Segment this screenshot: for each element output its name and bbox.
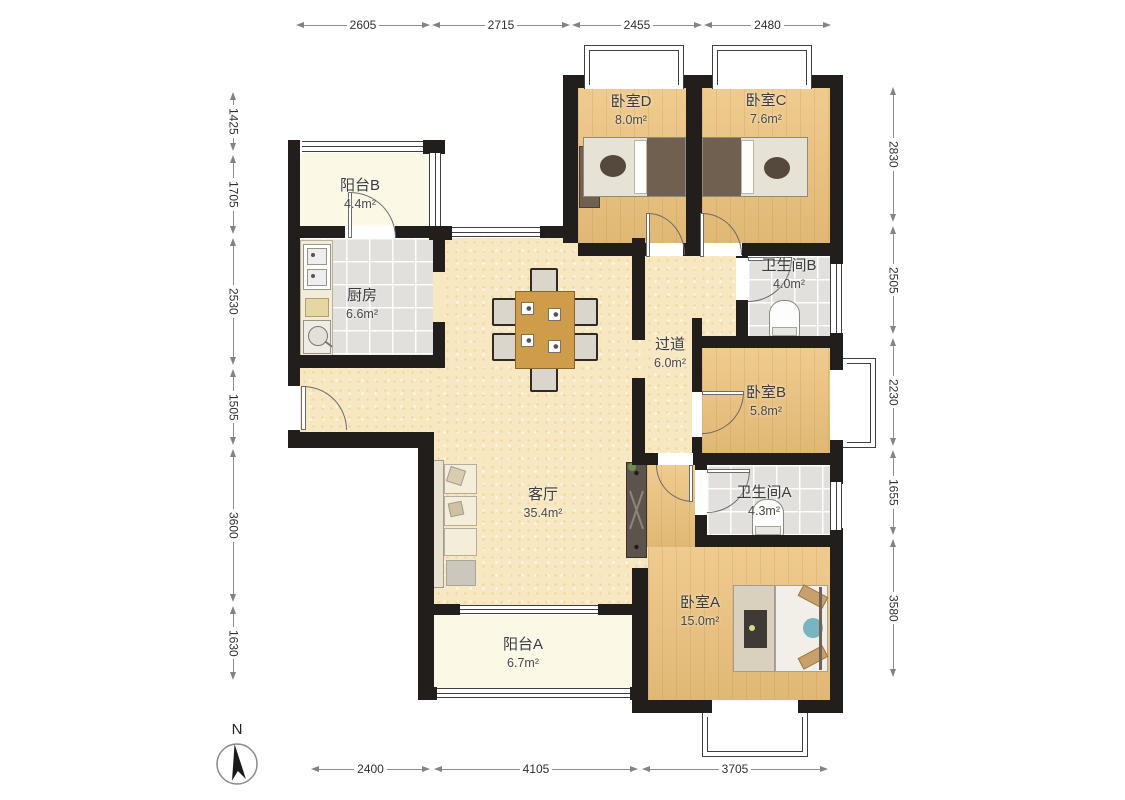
door-leaf (700, 213, 704, 257)
room-name: 卧室B (746, 384, 786, 403)
kitchen-passage (433, 272, 445, 322)
wall (418, 687, 437, 700)
room-label-bath-b: 卫生间B 4.0m² (761, 257, 816, 292)
room-area: 35.4m² (524, 505, 563, 521)
room-label-balcony-b: 阳台B 4.4m² (340, 177, 380, 212)
compass: N (214, 722, 260, 791)
kitchen-stove (303, 320, 331, 354)
kitchen-cutting-board (305, 298, 329, 317)
wall (692, 318, 702, 392)
dining-chair (530, 268, 558, 293)
wall (830, 75, 843, 264)
door-leaf (702, 391, 744, 395)
dimension-segment: 2230 (886, 338, 900, 446)
wall (630, 687, 648, 700)
floor-hallway (645, 256, 736, 336)
compass-icon (214, 740, 260, 786)
door-opening (736, 258, 748, 300)
wall (563, 75, 578, 243)
bay-window (843, 358, 876, 448)
room-area: 8.0m² (611, 112, 652, 128)
dimension-segment: 2715 (432, 18, 570, 32)
toilet (769, 300, 800, 338)
dining-chair (573, 298, 598, 326)
room-area: 5.8m² (746, 403, 786, 419)
dimension-segment: 4105 (434, 762, 638, 776)
dimension-segment: 2480 (704, 18, 831, 32)
room-label-bath-a: 卫生间A 4.3m² (736, 484, 791, 519)
room-label-bedroom-b: 卧室B 5.8m² (746, 384, 786, 419)
room-area: 6.0m² (654, 355, 686, 371)
window (830, 482, 842, 530)
dimension-segment: 1505 (226, 369, 240, 445)
dimension-segment: 1655 (886, 450, 900, 535)
room-name: 阳台A (503, 636, 543, 655)
wall (830, 528, 843, 713)
place-setting (548, 340, 561, 353)
dimension-segment: 2530 (226, 238, 240, 365)
room-name: 卧室D (611, 93, 652, 112)
dimension-segment: 3705 (642, 762, 828, 776)
wall (692, 437, 702, 453)
bed-bedroom-a (733, 585, 828, 672)
room-area: 4.4m² (340, 196, 380, 212)
room-name: 卧室C (746, 92, 787, 111)
place-setting (548, 308, 561, 321)
door-leaf (707, 469, 750, 473)
window (302, 141, 423, 152)
bed-bedroom-c (702, 137, 808, 197)
dimension-segment: 3600 (226, 449, 240, 602)
wall (433, 322, 445, 355)
wall (632, 378, 645, 465)
room-area: 4.3m² (736, 503, 791, 519)
balcony-slider (460, 605, 598, 614)
dimension-segment: 1705 (226, 155, 240, 234)
room-name: 厨房 (346, 287, 378, 306)
bay-window (584, 45, 684, 89)
room-name: 过道 (654, 336, 686, 355)
bay-window (702, 713, 808, 757)
wall (632, 238, 645, 340)
dining-chair (492, 333, 517, 361)
dining-chair (530, 367, 558, 392)
wall (598, 604, 648, 615)
door-opening (658, 453, 693, 465)
bay-window (712, 45, 812, 89)
dining-chair (573, 333, 598, 361)
wall (423, 140, 445, 154)
room-area: 4.0m² (761, 276, 816, 292)
room-area: 6.6m² (346, 306, 378, 322)
room-label-living: 客厅 35.4m² (524, 486, 563, 521)
wall (695, 535, 843, 547)
dimension-segment: 1425 (226, 92, 240, 151)
room-area: 6.7m² (503, 655, 543, 671)
room-label-kitchen: 厨房 6.6m² (346, 287, 378, 322)
room-name: 卫生间B (761, 257, 816, 276)
place-setting (521, 302, 534, 315)
wall (692, 336, 843, 348)
bay-opening (712, 700, 798, 713)
dimension-segment: 1630 (226, 606, 240, 680)
dimension-segment: 2400 (311, 762, 430, 776)
dimension-segment: 2455 (572, 18, 702, 32)
door-leaf (646, 213, 650, 257)
wall (433, 238, 445, 272)
bed-bedroom-d (583, 137, 686, 197)
window (830, 264, 842, 333)
room-name: 阳台B (340, 177, 380, 196)
room-name: 客厅 (524, 486, 563, 505)
floor-plan-canvas: 阳台B 4.4m² 厨房 6.6m² 卧室D 8.0m² 卧室C 7.6m² 卫… (0, 0, 1125, 800)
door-leaf (689, 465, 693, 502)
door-opening (692, 392, 702, 437)
room-area: 7.6m² (746, 111, 787, 127)
wall (288, 355, 445, 368)
sofa (431, 460, 482, 588)
window (429, 153, 441, 226)
window (452, 227, 540, 237)
wall (434, 604, 460, 615)
door-opening-entry (288, 386, 300, 430)
dining-chair (492, 298, 517, 326)
window (437, 688, 630, 698)
compass-north-label: N (214, 722, 260, 737)
room-name: 卫生间A (736, 484, 791, 503)
kitchen-sink (303, 244, 331, 290)
door-leaf (301, 386, 306, 430)
room-name: 卧室A (680, 594, 720, 613)
tv-cabinet (626, 462, 647, 558)
room-label-hallway: 过道 6.0m² (654, 336, 686, 371)
room-label-bedroom-a: 卧室A 15.0m² (680, 594, 720, 629)
room-label-bedroom-d: 卧室D 8.0m² (611, 93, 652, 128)
dimension-segment: 3580 (886, 539, 900, 677)
room-area: 15.0m² (680, 613, 720, 629)
room-label-balcony-a: 阳台A 6.7m² (503, 636, 543, 671)
dimension-segment: 2830 (886, 87, 900, 222)
dimension-segment: 2605 (296, 18, 430, 32)
dimension-segment: 2505 (886, 226, 900, 334)
place-setting (521, 334, 534, 347)
wall (418, 448, 434, 700)
wall (288, 432, 434, 448)
door-opening (695, 470, 707, 515)
room-label-bedroom-c: 卧室C 7.6m² (746, 92, 787, 127)
